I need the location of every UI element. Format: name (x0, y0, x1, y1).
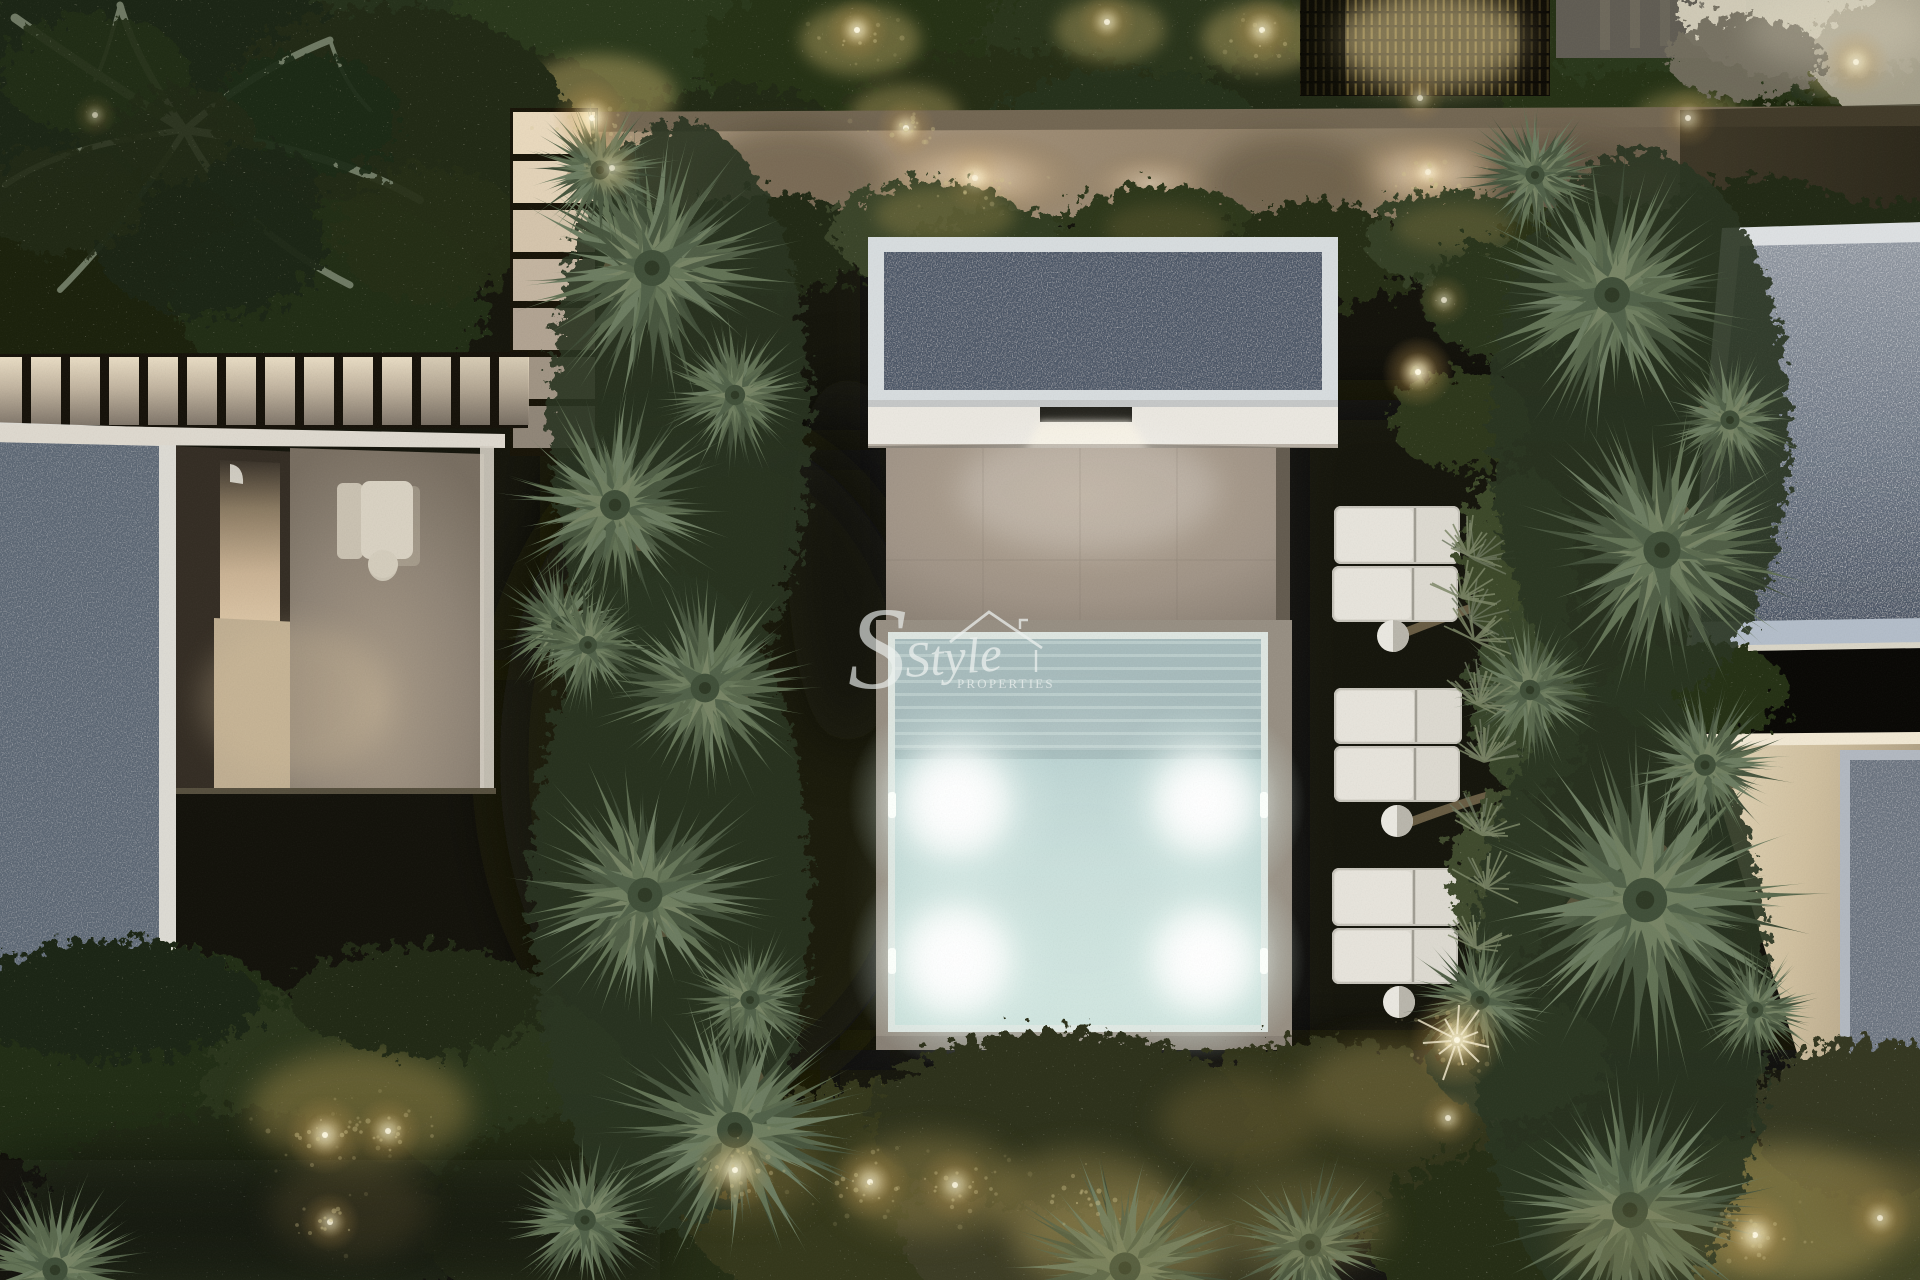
svg-text:S: S (848, 583, 907, 714)
svg-text:PROPERTIES: PROPERTIES (957, 676, 1055, 691)
